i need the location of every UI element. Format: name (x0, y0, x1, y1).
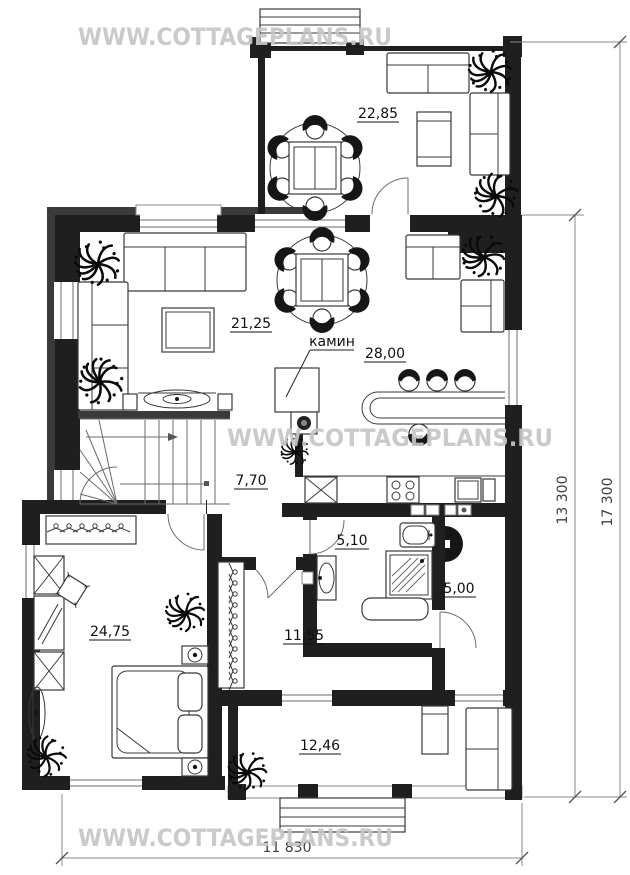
bedroom-wardrobe (46, 516, 136, 544)
room-area-hall: 7,70 (235, 473, 266, 489)
fireplace-label: камин (309, 334, 355, 350)
staircase (80, 419, 230, 504)
bed (112, 666, 208, 758)
watermark-middle: WWW.COTTAGEPLANS.RU (227, 424, 553, 452)
watermark-bottom: WWW.COTTAGEPLANS.RU (78, 824, 393, 852)
floor-plan-svg: 22,85 21,25 28,00 7,70 5,10 5,00 11,55 2… (0, 0, 630, 875)
veranda-sofa (387, 53, 469, 93)
living-sofa-top (124, 233, 246, 291)
nightstand (182, 646, 208, 664)
nightstand (182, 758, 208, 776)
bedroom-desk (34, 556, 90, 690)
boiler (445, 526, 463, 562)
bathtub (400, 523, 435, 547)
terrace-sofa (466, 708, 512, 790)
shower-cabin (386, 551, 432, 599)
room-area-kitchen: 28,00 (365, 346, 405, 362)
bar-stool (398, 369, 420, 391)
kitchen-sofa (406, 235, 460, 279)
kitchen-counter (303, 476, 505, 503)
plant-symbol (166, 593, 205, 631)
dimension-right-outer: 17 300 (600, 478, 616, 527)
living-coffee-table (162, 308, 214, 352)
room-area-terrace: 12,46 (300, 738, 340, 754)
room-area-living: 21,25 (231, 316, 271, 332)
tv-bench (123, 390, 232, 410)
floor-plan-page: 22,85 21,25 28,00 7,70 5,10 5,00 11,55 2… (0, 0, 630, 875)
bar-counter (362, 392, 505, 424)
room-area-veranda: 22,85 (358, 106, 398, 122)
bar-stool (426, 369, 448, 391)
room-area-utility: 5,00 (443, 581, 474, 597)
veranda-coffee-table (417, 112, 451, 166)
bar-stool (454, 369, 476, 391)
veranda-dining-set (263, 115, 367, 221)
dressing-wardrobe (218, 562, 244, 690)
plant-symbol (75, 241, 120, 285)
dressing-bench (362, 598, 428, 620)
room-area-bedroom: 24,75 (90, 624, 130, 640)
watermark-top: WWW.COTTAGEPLANS.RU (78, 23, 392, 51)
kitchen-loveseat (461, 280, 504, 332)
room-area-dressing: 11,55 (284, 628, 324, 644)
room-area-bathroom: 5,10 (336, 533, 367, 549)
terrace-table (422, 706, 448, 754)
dimension-right-inner: 13 300 (555, 476, 571, 525)
kitchen-dining-set (270, 227, 374, 333)
washbasin (317, 556, 336, 600)
veranda-armchair (470, 93, 510, 175)
